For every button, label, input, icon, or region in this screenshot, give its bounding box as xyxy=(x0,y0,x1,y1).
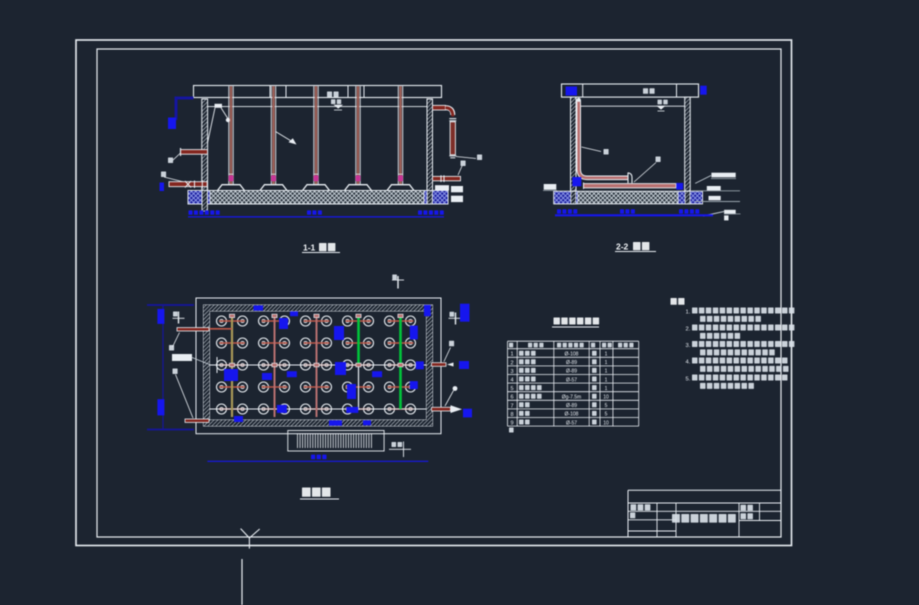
svg-text:5.: 5. xyxy=(686,377,691,383)
svg-text:3.: 3. xyxy=(686,343,691,349)
svg-text:5: 5 xyxy=(605,412,608,418)
svg-text:10: 10 xyxy=(603,395,609,401)
svg-text:Ø-57: Ø-57 xyxy=(566,377,577,383)
svg-text:10: 10 xyxy=(603,420,609,426)
svg-text:1.: 1. xyxy=(686,310,691,316)
svg-text:1: 1 xyxy=(605,369,608,375)
svg-text:3: 3 xyxy=(511,369,514,375)
svg-text:8: 8 xyxy=(511,412,514,418)
svg-text:7: 7 xyxy=(511,403,514,409)
svg-text:1: 1 xyxy=(605,360,608,366)
svg-text:6: 6 xyxy=(511,395,514,401)
svg-text:5: 5 xyxy=(605,403,608,409)
svg-text:1: 1 xyxy=(605,377,608,383)
svg-text:Ø-108: Ø-108 xyxy=(565,412,579,418)
svg-text:Øg-7.5m: Øg-7.5m xyxy=(562,395,581,401)
svg-text:1: 1 xyxy=(605,386,608,392)
svg-text:Ø-89: Ø-89 xyxy=(566,369,577,375)
svg-text:9: 9 xyxy=(511,421,514,427)
svg-text:5: 5 xyxy=(511,386,514,392)
svg-text:Ø-89: Ø-89 xyxy=(566,360,577,366)
svg-text:Ø-57: Ø-57 xyxy=(566,420,577,426)
svg-text:1: 1 xyxy=(511,352,514,358)
svg-text:2: 2 xyxy=(511,360,514,366)
svg-text:4.: 4. xyxy=(686,360,691,366)
svg-text:2.: 2. xyxy=(686,327,691,333)
svg-text:4: 4 xyxy=(511,378,514,384)
svg-text:1-1: 1-1 xyxy=(303,243,316,253)
svg-text:Ø-108: Ø-108 xyxy=(565,352,579,358)
svg-text:1: 1 xyxy=(605,352,608,358)
svg-text:2-2: 2-2 xyxy=(616,242,629,252)
svg-text:Ø-89: Ø-89 xyxy=(566,403,577,409)
